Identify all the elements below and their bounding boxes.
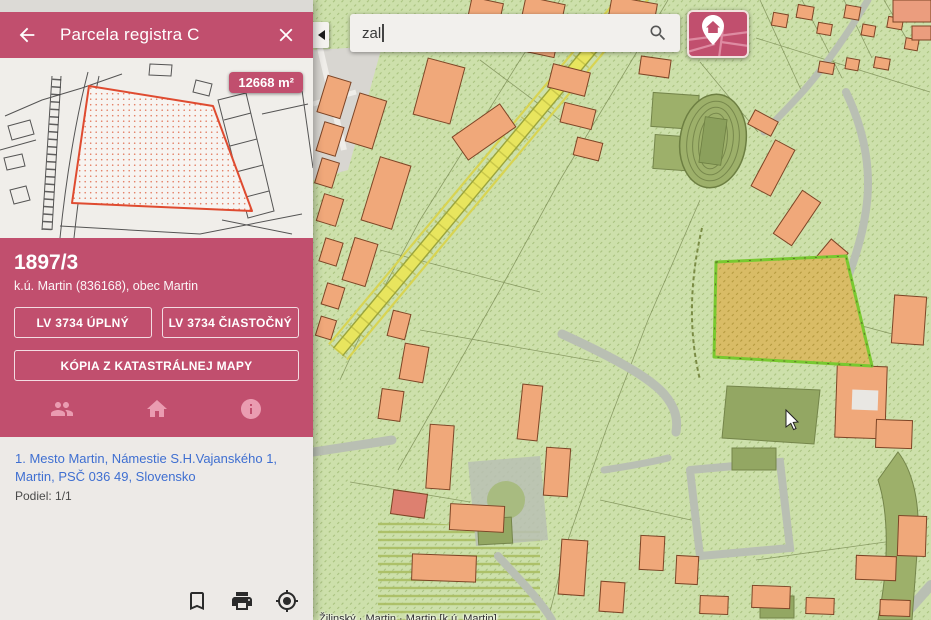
panel-collapse-button[interactable] <box>313 22 329 48</box>
owners-icon[interactable] <box>50 397 74 421</box>
parcel-action-icons <box>14 381 299 427</box>
map-area: zal Žilinský · Martin · Martin [k.ú. Mar… <box>313 0 931 620</box>
search-icon[interactable] <box>648 23 668 43</box>
print-icon[interactable] <box>230 589 254 613</box>
map-canvas[interactable] <box>313 0 931 620</box>
cadastral-map-copy-button[interactable]: KÓPIA Z KATASTRÁLNEJ MAPY <box>14 350 299 381</box>
ownership-share: Podiel: 1/1 <box>15 489 298 503</box>
parcel-detail-panel: Parcela registra C <box>0 0 313 620</box>
text-caret <box>382 24 384 42</box>
parcel-number: 1897/3 <box>14 251 299 275</box>
parcel-info-section: 1897/3 k.ú. Martin (836168), obec Martin… <box>0 238 313 437</box>
close-icon[interactable] <box>275 24 297 46</box>
panel-title: Parcela registra C <box>60 25 275 45</box>
parcel-area-badge: 12668 m² <box>229 72 303 93</box>
location-breadcrumb: Žilinský · Martin · Martin [k.ú. Martin] <box>319 613 497 620</box>
basemap-switch-button[interactable] <box>687 10 749 58</box>
panel-top-strip <box>0 0 313 12</box>
panel-footer-icons <box>185 589 299 613</box>
app-screen: Parcela registra C <box>0 0 931 620</box>
bookmark-icon[interactable] <box>185 589 209 613</box>
lv-partial-button[interactable]: LV 3734 ČIASTOČNÝ <box>162 307 300 338</box>
map-search-bar[interactable]: zal <box>350 14 680 52</box>
my-location-icon[interactable] <box>275 589 299 613</box>
parcel-subtitle: k.ú. Martin (836168), obec Martin <box>14 279 299 293</box>
info-icon[interactable] <box>239 397 263 421</box>
map-pin-house-icon <box>689 12 747 56</box>
owner-address-link[interactable]: 1. Mesto Martin, Námestie S.H.Vajanského… <box>15 450 298 485</box>
owner-section: 1. Mesto Martin, Námestie S.H.Vajanského… <box>0 437 313 620</box>
home-icon[interactable] <box>145 397 169 421</box>
search-input[interactable]: zal <box>362 25 381 42</box>
selected-parcel-highlight[interactable] <box>714 256 872 366</box>
chevron-left-icon <box>318 30 325 40</box>
lv-full-button[interactable]: LV 3734 ÚPLNÝ <box>14 307 152 338</box>
parcel-minimap-preview: 12668 m² <box>0 58 313 238</box>
back-icon[interactable] <box>16 24 38 46</box>
lv-buttons-row: LV 3734 ÚPLNÝ LV 3734 ČIASTOČNÝ <box>14 307 299 338</box>
panel-header: Parcela registra C <box>0 12 313 58</box>
